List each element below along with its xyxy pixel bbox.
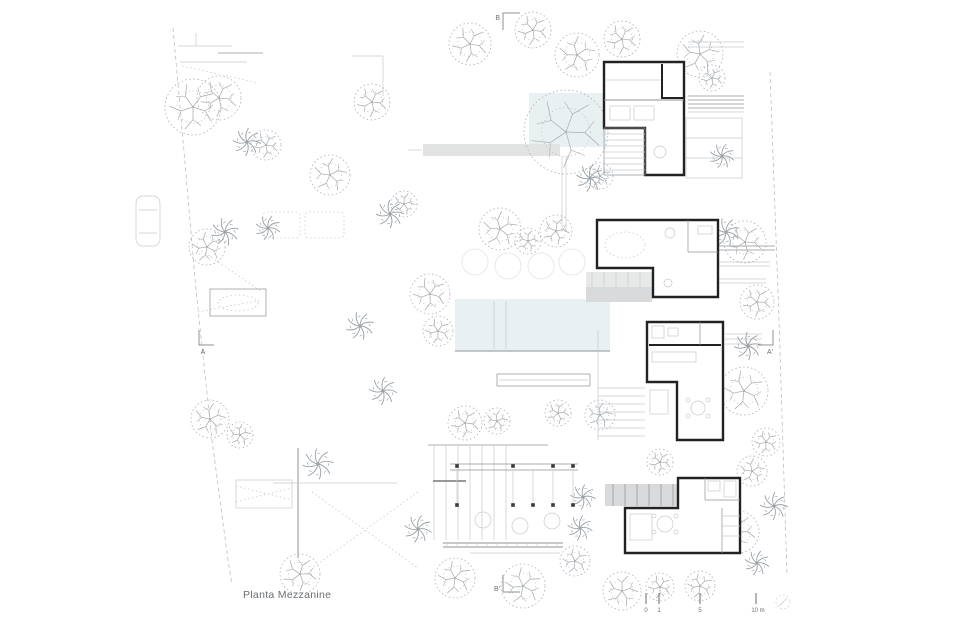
- palm-tree: [346, 312, 373, 339]
- pergola-column: [531, 503, 535, 507]
- round-tree: [740, 285, 774, 319]
- round-tree: [555, 33, 599, 77]
- round-tree: [280, 554, 320, 594]
- round-tree: [423, 316, 453, 346]
- round-tree: [197, 76, 241, 120]
- round-tree: [191, 400, 229, 438]
- pergola-column: [551, 503, 555, 507]
- steps-b2: [718, 246, 775, 283]
- balustrade: [443, 543, 563, 553]
- round-tree: [752, 428, 780, 456]
- scale-tick-5: 5: [698, 608, 702, 614]
- building-3: [647, 322, 723, 440]
- round-tree: [479, 208, 521, 250]
- round-tree: [585, 400, 615, 430]
- round-tree: [603, 572, 641, 610]
- deck-b2: [586, 272, 652, 302]
- round-tree: [699, 65, 725, 91]
- section-label-a-right: A': [767, 349, 773, 356]
- trellis: [434, 446, 506, 540]
- round-tree: [647, 449, 673, 475]
- round-tree: [545, 400, 571, 426]
- section-label-b-top: B: [495, 15, 500, 22]
- pergola-column: [571, 503, 575, 507]
- north-icon: [776, 595, 790, 609]
- scale-tick-0: 0: [644, 608, 648, 614]
- section-marker-a-left: A: [199, 330, 214, 356]
- round-tree: [354, 84, 390, 120]
- round-tree: [410, 274, 450, 314]
- round-tree: [189, 229, 225, 265]
- pergola-column: [511, 464, 515, 468]
- round-tree: [435, 558, 475, 598]
- pergola-column: [571, 464, 575, 468]
- palm-tree: [256, 216, 280, 240]
- steps-b1: [686, 96, 744, 178]
- main-pool: [455, 299, 610, 351]
- scale-tick-10m: 10 m: [751, 608, 764, 614]
- palm-tree: [405, 516, 432, 543]
- building-1: [604, 62, 684, 175]
- round-tree: [310, 155, 350, 195]
- round-tree: [449, 23, 491, 65]
- round-tree: [391, 191, 417, 217]
- palm-tree: [369, 377, 397, 405]
- round-tree: [540, 215, 572, 247]
- round-tree: [737, 456, 767, 486]
- round-tree: [515, 228, 541, 254]
- round-tree: [227, 422, 253, 448]
- round-tree: [448, 406, 482, 440]
- round-tree: [165, 79, 221, 135]
- round-tree: [501, 564, 545, 608]
- palm-tree: [745, 551, 769, 575]
- left-garden-elements: [210, 212, 344, 316]
- pergola-column: [511, 503, 515, 507]
- section-label-b-bottom: B': [494, 586, 500, 593]
- pergola-column: [551, 464, 555, 468]
- palm-tree: [710, 144, 734, 168]
- yard-lines: [236, 448, 466, 568]
- plan-title: Planta Mezzanine: [243, 589, 331, 601]
- round-tree: [720, 367, 768, 415]
- floor-plan-drawing: B B' A A' Planta Mezzanine 0 1 5 10 m: [0, 0, 960, 621]
- round-tree: [515, 12, 551, 48]
- car: [136, 196, 160, 246]
- scale-bar: 0 1 5 10 m: [644, 593, 790, 614]
- deck-b4: [605, 484, 680, 506]
- section-label-a-left: A: [201, 349, 206, 356]
- palm-tree: [568, 516, 593, 541]
- round-tree: [484, 408, 510, 434]
- floor-plan-sheet: B B' A A' Planta Mezzanine 0 1 5 10 m: [0, 0, 960, 621]
- round-tree: [560, 546, 590, 576]
- section-marker-b-top: B: [495, 13, 520, 30]
- round-tree: [604, 21, 640, 57]
- palm-tree: [303, 449, 334, 480]
- palm-tree: [233, 128, 261, 156]
- pergola: [450, 464, 578, 534]
- palm-tree: [760, 492, 788, 520]
- round-tree: [646, 573, 674, 601]
- pergola-column: [455, 464, 459, 468]
- scale-tick-1: 1: [657, 608, 661, 614]
- palm-tree: [734, 332, 762, 360]
- section-marker-b-bottom: B': [494, 575, 520, 593]
- round-tree: [251, 130, 281, 160]
- pergola-column: [455, 503, 459, 507]
- palm-tree: [376, 200, 404, 228]
